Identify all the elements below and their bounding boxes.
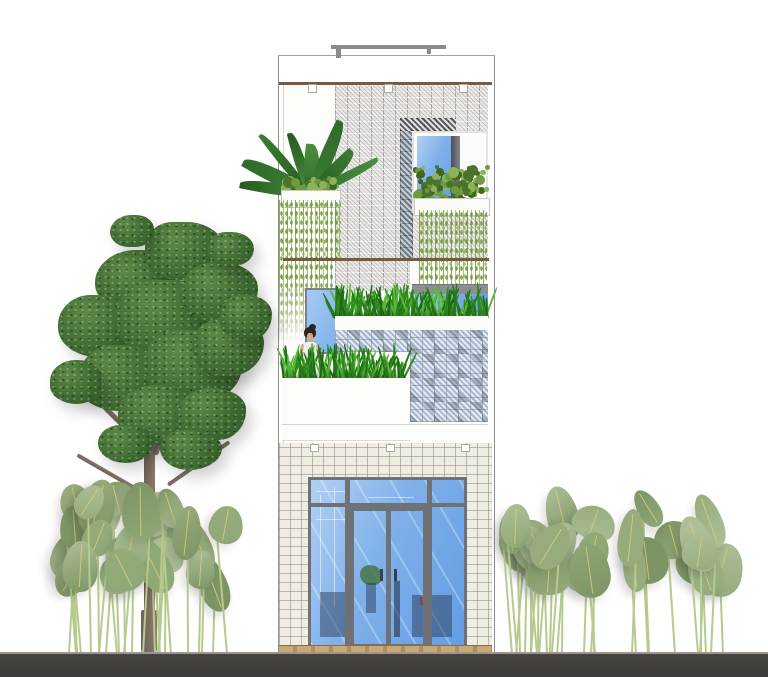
hedge-tuft: [475, 175, 485, 185]
interior-shelf-line: [368, 497, 414, 498]
hedge-tuft: [417, 171, 425, 179]
grass-planter-lower: [282, 344, 406, 380]
tree-foliage-cluster: [160, 430, 222, 470]
shrub-leaf: [500, 504, 531, 549]
breeze-block-dark-row: [400, 118, 456, 131]
hedge-tuft: [431, 187, 436, 192]
hedge-tuft: [418, 179, 423, 184]
roof-rail-post-left: [336, 45, 341, 58]
hedge-tuft: [327, 176, 332, 181]
roof-rail-post-right: [427, 45, 431, 54]
facade-tab: [384, 84, 393, 93]
tree-foliage-cluster: [208, 232, 254, 266]
shrub-bed-right: [492, 486, 754, 654]
interior-stair-line: [316, 491, 346, 492]
door-handle-right: [394, 569, 397, 581]
hedge-tuft: [463, 190, 469, 196]
door-handle-left: [380, 569, 383, 581]
hedge-tuft: [435, 165, 439, 169]
lower-parapet: [282, 378, 410, 441]
shrub-stem: [702, 586, 706, 654]
hedge-tuft: [485, 165, 490, 170]
hedge-tuft: [484, 187, 488, 191]
tree-foliage-cluster: [110, 215, 154, 247]
facade-tab: [459, 84, 468, 93]
shrub-leaf: [206, 504, 246, 548]
stone-tab: [461, 444, 470, 452]
storefront-mullion-right: [427, 477, 432, 648]
door-meeting-stile: [386, 511, 391, 644]
breeze-block-blue-panel: [410, 330, 488, 422]
shrub-bed-left: [28, 478, 246, 654]
hedge-tuft: [468, 182, 475, 189]
grass-planter-upper: [333, 284, 489, 318]
hedge-tuft: [448, 167, 458, 177]
hedge-tuft: [451, 186, 459, 194]
interior-stair-stringer: [320, 495, 321, 605]
tree-foliage-cluster: [220, 295, 272, 339]
stone-tab: [386, 444, 395, 452]
double-door: [350, 507, 427, 648]
stone-tab: [310, 444, 319, 452]
parapet-joint-line: [282, 424, 488, 425]
ground-strip: [0, 652, 768, 677]
hedge-tuft: [425, 188, 429, 192]
interior-chair: [320, 592, 346, 637]
facade-tab: [308, 84, 317, 93]
shrub-stem: [186, 549, 188, 654]
tree-foliage-cluster: [50, 360, 102, 404]
hedge-tuft: [421, 166, 425, 170]
elevation-rendering: [0, 0, 768, 677]
